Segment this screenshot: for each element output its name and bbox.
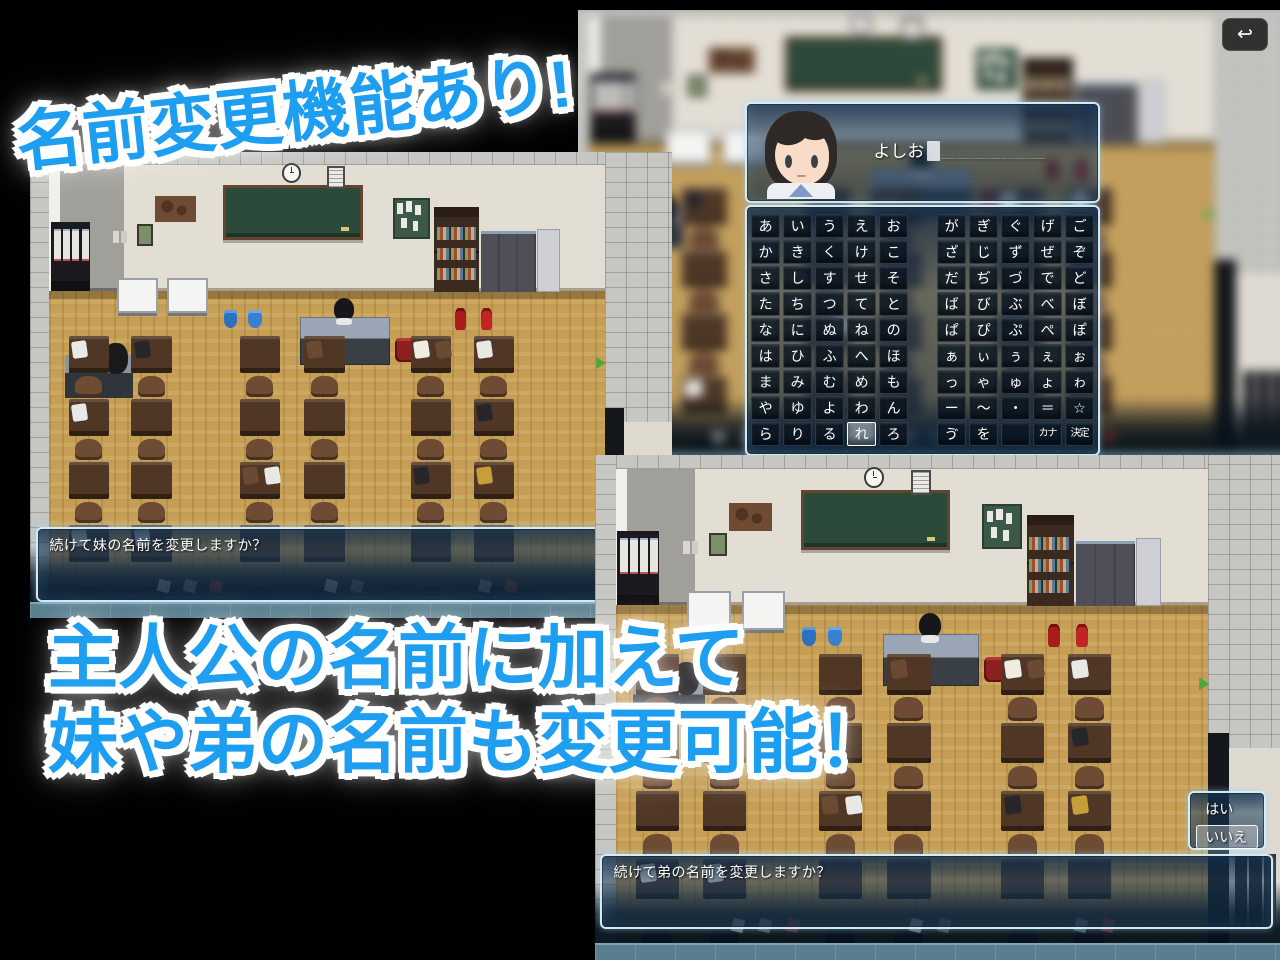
chair bbox=[138, 376, 165, 397]
picture-frame bbox=[687, 75, 706, 96]
desk-item-bag bbox=[413, 466, 431, 485]
kana-key-か[interactable]: か bbox=[751, 240, 780, 264]
bulletin-note bbox=[996, 509, 1002, 520]
protagonist-portrait bbox=[759, 109, 843, 197]
desk bbox=[131, 462, 171, 499]
kana-key-そ[interactable]: そ bbox=[879, 266, 908, 290]
blackboard-chalk bbox=[927, 537, 935, 541]
wall-poster bbox=[683, 541, 690, 554]
teacher-hair bbox=[919, 613, 941, 637]
chair bbox=[311, 502, 338, 523]
kana-key-ろ[interactable]: ろ bbox=[879, 422, 908, 446]
message-text: 続けて妹の名前を変更しますか？ bbox=[38, 529, 663, 561]
locker-left-door bbox=[82, 229, 89, 262]
keyboard-row: はひふへほぁぃぅぇぉ bbox=[747, 344, 1098, 368]
kana-key-は[interactable]: は bbox=[751, 344, 780, 368]
kana-key-ぐ[interactable]: ぐ bbox=[1001, 214, 1030, 238]
locker-left-door bbox=[605, 80, 613, 113]
bulletin-note bbox=[998, 72, 1005, 82]
keyboard-block-gap bbox=[910, 240, 936, 264]
schedule-board bbox=[902, 17, 923, 40]
kana-key-る[interactable]: る bbox=[815, 422, 844, 446]
chair bbox=[75, 376, 102, 397]
chair bbox=[138, 502, 165, 523]
kana-key-ぽ[interactable]: ぽ bbox=[1065, 318, 1094, 342]
kana-key-ゆ[interactable]: ゆ bbox=[783, 396, 812, 420]
kana-key-ん[interactable]: ん bbox=[879, 396, 908, 420]
kana-key-ひ[interactable]: ひ bbox=[783, 344, 812, 368]
kana-key-ぢ[interactable]: ぢ bbox=[969, 266, 998, 290]
kana-key-ぜ[interactable]: ぜ bbox=[1033, 240, 1062, 264]
wall-clock bbox=[851, 14, 873, 34]
whiteboard bbox=[665, 129, 711, 164]
kana-key-の[interactable]: の bbox=[879, 318, 908, 342]
desk-item-bookyellow bbox=[476, 466, 494, 485]
bulletin-note bbox=[397, 203, 403, 213]
name-value: よしお bbox=[873, 142, 924, 161]
headline-middle: 主人公の名前に加えて 妹や弟の名前も変更可能！ bbox=[48, 616, 888, 784]
locker-left-door bbox=[626, 80, 634, 113]
screenshot-sister-dialog: 続けて妹の名前を変更しますか？ bbox=[30, 152, 672, 618]
teacher-shirt bbox=[336, 318, 353, 325]
kana-key-さ[interactable]: さ bbox=[751, 266, 780, 290]
kana-key-カナ[interactable]: カナ bbox=[1033, 422, 1062, 446]
kana-key-ね[interactable]: ね bbox=[847, 318, 876, 342]
whiteboard bbox=[167, 278, 208, 313]
chair bbox=[1008, 697, 1037, 720]
desk bbox=[240, 399, 280, 436]
locker-right bbox=[1076, 541, 1135, 607]
chair bbox=[480, 502, 507, 523]
kana-key-ぱ[interactable]: ぱ bbox=[937, 318, 966, 342]
kana-key-ら[interactable]: ら bbox=[751, 422, 780, 446]
wall-poster bbox=[121, 231, 127, 243]
bookshelf-books bbox=[1029, 580, 1071, 593]
desk-item-bag bbox=[1003, 795, 1022, 815]
kana-key-り[interactable]: り bbox=[783, 422, 812, 446]
chair bbox=[689, 352, 719, 373]
chair bbox=[480, 376, 507, 397]
bulletin-note bbox=[981, 54, 988, 64]
bookshelf-books bbox=[1029, 537, 1071, 550]
kana-key-む[interactable]: む bbox=[815, 370, 844, 394]
kana-key-た[interactable]: た bbox=[751, 292, 780, 316]
kana-key-っ[interactable]: っ bbox=[937, 370, 966, 394]
desk bbox=[69, 462, 109, 499]
kana-key-め[interactable]: め bbox=[847, 370, 876, 394]
kana-key-ぅ[interactable]: ぅ bbox=[1001, 344, 1030, 368]
chair bbox=[417, 376, 444, 397]
chair bbox=[75, 502, 102, 523]
world-map bbox=[708, 47, 754, 73]
fire-extinguisher bbox=[1048, 624, 1060, 647]
floor-tiles-border bbox=[595, 455, 1280, 469]
kana-key-が[interactable]: が bbox=[937, 214, 966, 238]
locker-left-door bbox=[594, 80, 602, 113]
world-map bbox=[729, 503, 773, 531]
kana-key-ふ[interactable]: ふ bbox=[815, 344, 844, 368]
kana-key-あ[interactable]: あ bbox=[751, 214, 780, 238]
chair bbox=[417, 439, 444, 460]
keyboard-row: らりるれろゔをカナ決定 bbox=[747, 422, 1098, 446]
desk-item-paper bbox=[71, 403, 89, 422]
kana-key-い[interactable]: い bbox=[783, 214, 812, 238]
keyboard-block-gap bbox=[910, 344, 936, 368]
keyboard-block-gap bbox=[910, 370, 936, 394]
kana-key-ど[interactable]: ど bbox=[1065, 266, 1094, 290]
desk-item-bag bbox=[1071, 727, 1090, 747]
kana-key-だ[interactable]: だ bbox=[937, 266, 966, 290]
desk bbox=[304, 462, 344, 499]
keyboard-block-gap bbox=[910, 292, 936, 316]
desk-item-bagbrown bbox=[890, 658, 909, 678]
schedule-board bbox=[911, 470, 931, 495]
bulletin-note bbox=[413, 221, 419, 231]
kana-key-ざ[interactable]: ざ bbox=[937, 240, 966, 264]
kana-key-え[interactable]: え bbox=[847, 214, 876, 238]
kana-key-じ[interactable]: じ bbox=[969, 240, 998, 264]
name-cursor bbox=[927, 141, 940, 161]
keyboard-block-gap bbox=[910, 422, 936, 446]
kana-key-ー[interactable]: ー bbox=[937, 396, 966, 420]
name-empty-slots: ＿＿＿＿＿＿＿ bbox=[941, 144, 1046, 160]
portrait-shirt bbox=[789, 184, 813, 197]
blackboard bbox=[801, 490, 950, 550]
portrait-mouth bbox=[797, 175, 806, 177]
kana-key-よ[interactable]: よ bbox=[815, 396, 844, 420]
kana-key-れ[interactable]: れ bbox=[847, 422, 876, 446]
desk bbox=[1001, 723, 1044, 763]
name-entry-line: よしお＿＿＿＿＿＿＿ bbox=[873, 137, 1046, 162]
bulletin-note bbox=[987, 511, 993, 522]
teacher-shirt bbox=[921, 635, 939, 643]
desk bbox=[682, 250, 728, 287]
kana-key-ぬ[interactable]: ぬ bbox=[815, 318, 844, 342]
keyboard-row: まみむめもっゃゅょゎ bbox=[747, 370, 1098, 394]
desk bbox=[240, 336, 280, 373]
bucket bbox=[248, 310, 261, 328]
kana-key-blank[interactable] bbox=[1001, 422, 1030, 446]
wall-poster bbox=[692, 541, 699, 554]
chair bbox=[894, 697, 923, 720]
kana-key-ょ[interactable]: ょ bbox=[1033, 370, 1062, 394]
kana-key-ぉ[interactable]: ぉ bbox=[1065, 344, 1094, 368]
desk-item-bagbrown bbox=[242, 466, 260, 485]
locker-left-door bbox=[630, 538, 638, 573]
bulletin-note bbox=[991, 527, 997, 538]
keyboard-row: かきくけこざじずぜぞ bbox=[747, 240, 1098, 264]
choice-yes[interactable]: はい bbox=[1196, 797, 1258, 821]
teacher-hair bbox=[334, 298, 355, 320]
kana-key-つ[interactable]: つ bbox=[815, 292, 844, 316]
chair bbox=[311, 439, 338, 460]
bulletin-note bbox=[991, 53, 998, 63]
wall-clock bbox=[282, 163, 301, 183]
keyboard-row: あいうえおがぎぐげご bbox=[747, 214, 1098, 238]
kana-key-ず[interactable]: ず bbox=[1001, 240, 1030, 264]
desk-item-bag bbox=[134, 340, 152, 359]
desk-item-bagbrown bbox=[1027, 658, 1046, 678]
bulletin-note bbox=[1006, 513, 1012, 524]
world-map bbox=[155, 196, 196, 222]
kana-key-せ[interactable]: せ bbox=[847, 266, 876, 290]
chair bbox=[75, 439, 102, 460]
desk-item-paper bbox=[476, 340, 494, 359]
desk bbox=[304, 399, 344, 436]
kana-key-ぴ[interactable]: ぴ bbox=[969, 318, 998, 342]
kana-key-べ[interactable]: べ bbox=[1033, 292, 1062, 316]
fire-extinguisher bbox=[1076, 624, 1088, 647]
kana-key-づ[interactable]: づ bbox=[1001, 266, 1030, 290]
kana-key-ほ[interactable]: ほ bbox=[879, 344, 908, 368]
choice-no[interactable]: いいえ bbox=[1196, 825, 1258, 849]
kana-key-ゔ[interactable]: ゔ bbox=[937, 422, 966, 446]
kana-keyboard-window: あいうえおがぎぐげごかきくけこざじずぜぞさしすせそだぢづでどたちつてとばびぶべぼ… bbox=[745, 205, 1100, 455]
keyboard-block-gap bbox=[910, 318, 936, 342]
desk-item-bookyellow bbox=[1071, 795, 1090, 815]
kana-key-で[interactable]: で bbox=[1033, 266, 1062, 290]
bucket bbox=[224, 310, 237, 328]
locker-left-door bbox=[650, 538, 658, 573]
cabinet-white bbox=[1139, 80, 1165, 143]
bulletin-note bbox=[401, 218, 407, 228]
chair bbox=[246, 502, 273, 523]
kana-key-げ[interactable]: げ bbox=[1033, 214, 1062, 238]
kana-key-決定[interactable]: 決定 bbox=[1065, 422, 1094, 446]
kana-key-ぷ[interactable]: ぷ bbox=[1001, 318, 1030, 342]
desk-item-bag bbox=[684, 191, 704, 210]
kana-key-～[interactable]: ～ bbox=[969, 396, 998, 420]
message-window-brother[interactable]: 続けて弟の名前を変更しますか？ bbox=[600, 854, 1273, 929]
keyboard-row: なにぬねのぱぴぷぺぽ bbox=[747, 318, 1098, 342]
desk-item-book bbox=[1003, 658, 1022, 678]
kana-key-こ[interactable]: こ bbox=[879, 240, 908, 264]
kana-key-に[interactable]: に bbox=[783, 318, 812, 342]
chair bbox=[246, 376, 273, 397]
chair bbox=[1075, 697, 1104, 720]
chair bbox=[480, 439, 507, 460]
kana-key-ぞ[interactable]: ぞ bbox=[1065, 240, 1094, 264]
kana-key-き[interactable]: き bbox=[783, 240, 812, 264]
kana-key-ぁ[interactable]: ぁ bbox=[937, 344, 966, 368]
whiteboard bbox=[117, 278, 158, 313]
chair bbox=[138, 439, 165, 460]
desk-item-bagbrown bbox=[306, 340, 324, 359]
wall-poster bbox=[661, 82, 668, 94]
desk-item-bagbrown bbox=[435, 340, 453, 359]
fire-extinguisher bbox=[481, 308, 492, 329]
kana-key-☆[interactable]: ☆ bbox=[1065, 396, 1094, 420]
bulletin-note bbox=[1003, 530, 1009, 541]
desk-item-paper bbox=[264, 466, 282, 485]
kana-key-も[interactable]: も bbox=[879, 370, 908, 394]
kana-key-な[interactable]: な bbox=[751, 318, 780, 342]
kana-key-す[interactable]: す bbox=[815, 266, 844, 290]
kana-key-ご[interactable]: ご bbox=[1065, 214, 1094, 238]
hall-tiles bbox=[595, 943, 1280, 960]
keyboard-block-gap bbox=[910, 396, 936, 420]
desk-item-paper bbox=[1071, 658, 1090, 678]
kana-key-＝[interactable]: ＝ bbox=[1033, 396, 1062, 420]
locker-left-door bbox=[620, 538, 628, 573]
desk bbox=[411, 399, 451, 436]
desk-item-bagbrown bbox=[821, 795, 840, 815]
screenshot-name-input: よしお＿＿＿＿＿＿＿ あいうえおがぎぐげごかきくけこざじずぜぞさしすせそだぢづで… bbox=[578, 10, 1280, 462]
blackboard bbox=[784, 36, 942, 91]
chair bbox=[689, 227, 719, 248]
keyboard-row: さしすせそだぢづでど bbox=[747, 266, 1098, 290]
blackboard-chalk bbox=[341, 227, 349, 231]
kana-key-び[interactable]: び bbox=[969, 292, 998, 316]
kana-key-わ[interactable]: わ bbox=[847, 396, 876, 420]
chair bbox=[311, 376, 338, 397]
kana-key-し[interactable]: し bbox=[783, 266, 812, 290]
bulletin-note bbox=[406, 201, 412, 211]
kana-key-お[interactable]: お bbox=[879, 214, 908, 238]
picture-frame bbox=[709, 533, 727, 556]
blackboard-chalk bbox=[918, 79, 927, 83]
desk-item-paper bbox=[684, 379, 704, 398]
desk bbox=[682, 313, 728, 350]
kana-key-や[interactable]: や bbox=[751, 396, 780, 420]
kana-key-ぺ[interactable]: ぺ bbox=[1033, 318, 1062, 342]
choice-window: はい いいえ bbox=[1188, 791, 1266, 851]
bulletin-note bbox=[415, 205, 421, 215]
chair bbox=[1008, 766, 1037, 789]
headline-mid-line2: 妹や弟の名前も変更可能！ bbox=[48, 700, 888, 784]
name-input-window: よしお＿＿＿＿＿＿＿ bbox=[745, 102, 1100, 203]
bulletin-note bbox=[985, 69, 992, 79]
bulletin-note bbox=[1001, 56, 1008, 66]
kana-key-ゃ[interactable]: ゃ bbox=[969, 370, 998, 394]
desk bbox=[703, 791, 746, 831]
kana-key-へ[interactable]: へ bbox=[847, 344, 876, 368]
desk-item-book bbox=[413, 340, 431, 359]
desk bbox=[887, 723, 930, 763]
blackboard bbox=[223, 185, 363, 240]
locker-right bbox=[481, 231, 536, 292]
keyboard-row: たちつてとばびぶべぼ bbox=[747, 292, 1098, 316]
headline-mid-line1: 主人公の名前に加えて bbox=[48, 616, 888, 700]
locker-left-door bbox=[615, 80, 623, 113]
kana-key-と[interactable]: と bbox=[879, 292, 908, 316]
desk bbox=[636, 791, 679, 831]
keyboard-row: やゆよわんー～・＝☆ bbox=[747, 396, 1098, 420]
keyboard-block-gap bbox=[910, 266, 936, 290]
bookshelf-books bbox=[1029, 559, 1071, 572]
wall-poster bbox=[113, 231, 119, 243]
chair bbox=[689, 290, 719, 311]
back-icon: ↩ bbox=[1237, 24, 1253, 45]
kana-key-ぎ[interactable]: ぎ bbox=[969, 214, 998, 238]
chair bbox=[894, 766, 923, 789]
message-text: 続けて弟の名前を変更しますか？ bbox=[602, 856, 1271, 888]
kana-key-ぶ[interactable]: ぶ bbox=[1001, 292, 1030, 316]
cabinet-white bbox=[1136, 538, 1161, 606]
message-window-sister[interactable]: 続けて妹の名前を変更しますか？ bbox=[36, 527, 665, 602]
kana-key-ゎ[interactable]: ゎ bbox=[1065, 370, 1094, 394]
kana-key-ゅ[interactable]: ゅ bbox=[1001, 370, 1030, 394]
chair bbox=[1075, 766, 1104, 789]
locker-left-door bbox=[72, 229, 79, 262]
desk-item-bag bbox=[476, 403, 494, 422]
kana-key-を[interactable]: を bbox=[969, 422, 998, 446]
bookshelf-books bbox=[1026, 79, 1070, 91]
kana-key-・[interactable]: ・ bbox=[1001, 396, 1030, 420]
fire-extinguisher bbox=[455, 308, 466, 329]
kana-key-ち[interactable]: ち bbox=[783, 292, 812, 316]
cabinet-white bbox=[537, 229, 560, 292]
kana-key-み[interactable]: み bbox=[783, 370, 812, 394]
kana-key-ぼ[interactable]: ぼ bbox=[1065, 292, 1094, 316]
kana-key-ぃ[interactable]: ぃ bbox=[969, 344, 998, 368]
locker-left-door bbox=[63, 229, 70, 262]
desk-item-paper bbox=[71, 340, 89, 359]
bookshelf-books bbox=[437, 268, 476, 280]
keyboard-block-gap bbox=[910, 214, 936, 238]
kana-key-て[interactable]: て bbox=[847, 292, 876, 316]
kana-key-ば[interactable]: ば bbox=[937, 292, 966, 316]
promo-image: よしお＿＿＿＿＿＿＿ あいうえおがぎぐげごかきくけこざじずぜぞさしすせそだぢづで… bbox=[0, 0, 1280, 960]
bookshelf-books bbox=[437, 227, 476, 239]
desk-item-paper bbox=[845, 795, 864, 815]
kana-key-く[interactable]: く bbox=[815, 240, 844, 264]
bookshelf-books bbox=[437, 248, 476, 260]
back-button[interactable]: ↩ bbox=[1222, 18, 1268, 51]
kana-key-ぇ[interactable]: ぇ bbox=[1033, 344, 1062, 368]
wall-poster bbox=[669, 82, 676, 94]
desk bbox=[887, 791, 930, 831]
chair bbox=[417, 502, 444, 523]
locker-left-door bbox=[640, 538, 648, 573]
kana-key-け[interactable]: け bbox=[847, 240, 876, 264]
schedule-board bbox=[327, 166, 346, 189]
desk bbox=[131, 399, 171, 436]
kana-key-う[interactable]: う bbox=[815, 214, 844, 238]
chair bbox=[246, 439, 273, 460]
kana-key-ま[interactable]: ま bbox=[751, 370, 780, 394]
locker-left-door bbox=[54, 229, 61, 262]
picture-frame bbox=[137, 224, 154, 245]
